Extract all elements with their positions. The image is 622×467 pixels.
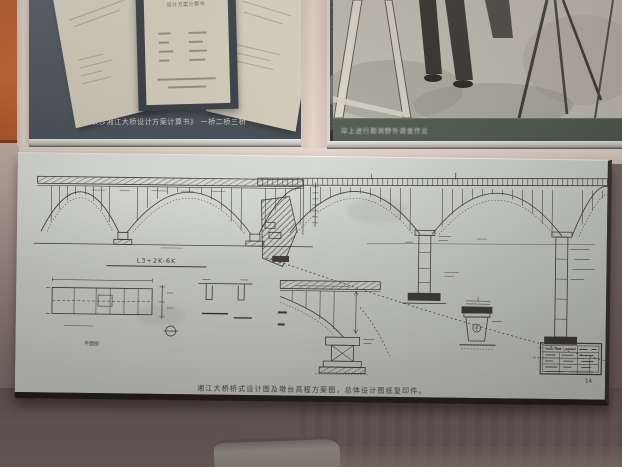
photo-panel-frame — [327, 141, 622, 149]
drawing-pier-detail — [277, 276, 396, 376]
plan-view-label: 平面图 — [61, 340, 121, 348]
document-panel-frame — [29, 139, 301, 147]
wall-divider-center — [301, 0, 328, 148]
blueprint-caption: 湘江大桥桥式设计图及墩台高程方案图，总体设计图纸复印件。 — [15, 381, 609, 399]
survey-photo-panel: 岸上进行勘测野外调查作业 — [327, 0, 622, 141]
chainage-label: L3+2K-6K — [107, 256, 207, 267]
survey-photo — [333, 0, 622, 118]
photo-caption-bar: 岸上进行勘测野外调查作业 — [333, 118, 622, 141]
document-title: 设计方案计算书 — [144, 0, 228, 9]
display-stand-corner — [213, 436, 340, 467]
title-block: 14 — [539, 342, 604, 385]
orange-panel-edge — [0, 0, 17, 143]
sheet-number: 14 — [585, 378, 593, 384]
document-center-cover: 设计方案计算书 — [144, 0, 231, 105]
drawing-small-pier — [451, 297, 504, 356]
drawing-plan-view — [44, 273, 183, 341]
document-center-mat: 设计方案计算书 — [135, 0, 238, 111]
museum-exhibit-photo: 设计方案计算书 《长沙湘江大桥设计方案计算书》 一桥二桥三桥 — [0, 0, 622, 467]
drawing-cross-section — [194, 273, 257, 330]
document-panel-caption: 《长沙湘江大桥设计方案计算书》 一桥二桥三桥 — [29, 117, 301, 127]
photo-caption: 岸上进行勘测野外调查作业 — [341, 125, 429, 135]
blueprint-panel: L3+2K-6K 平面图 — [15, 152, 612, 406]
